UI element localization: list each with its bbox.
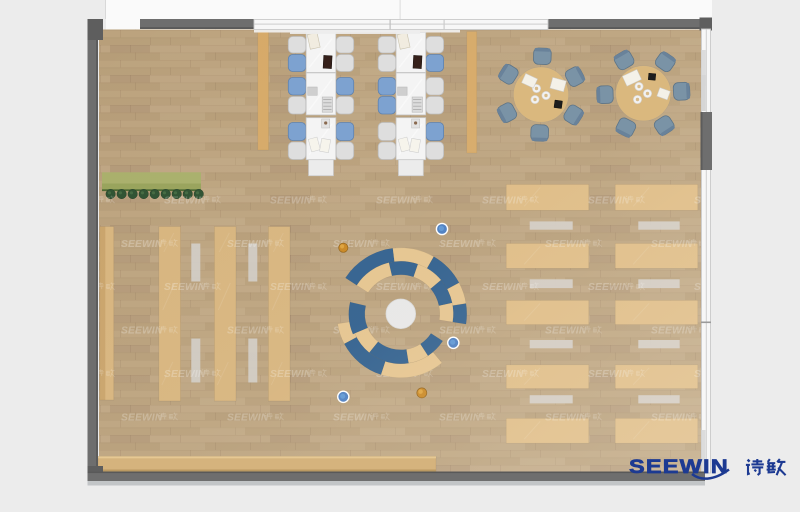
svg-text:SEEWIN: SEEWIN	[629, 456, 729, 478]
